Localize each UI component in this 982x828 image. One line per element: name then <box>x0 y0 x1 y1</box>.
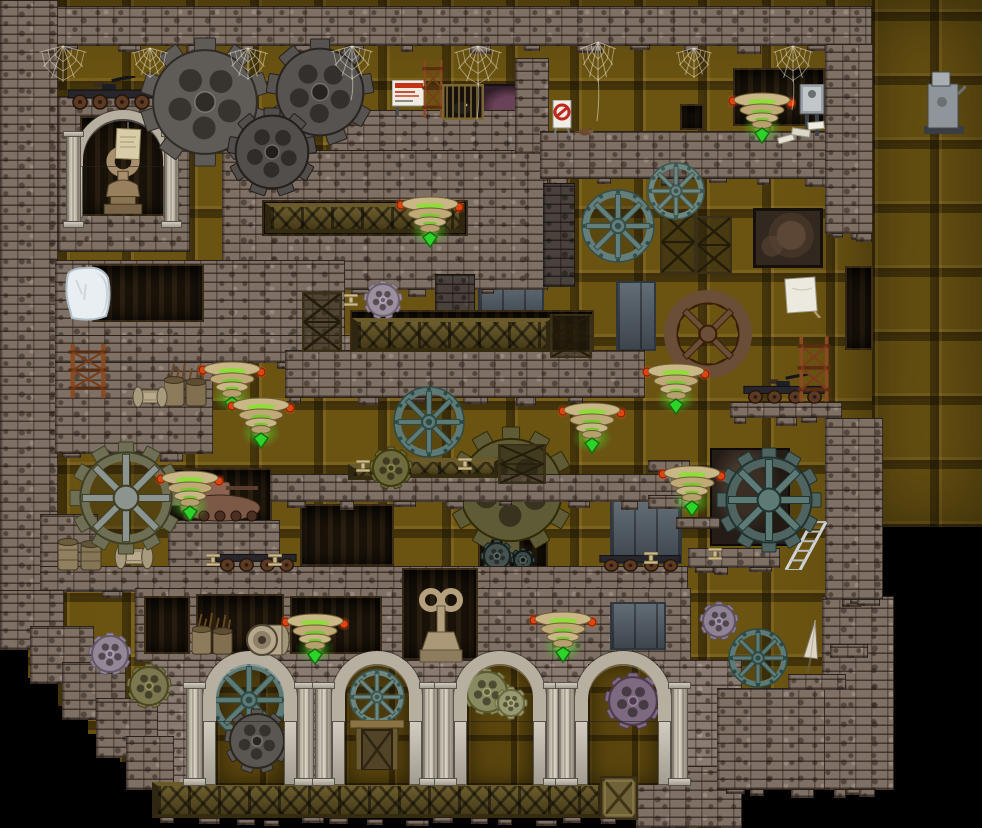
collectible-lamp[interactable] <box>642 359 710 417</box>
brick-crumb <box>776 417 797 426</box>
spider-web-icon <box>674 46 714 86</box>
spider-web-icon <box>130 46 170 86</box>
level-boundary <box>24 678 58 788</box>
stone-jamb <box>575 721 588 785</box>
column-base <box>161 221 182 228</box>
column-capital <box>183 682 206 689</box>
brick-crumb <box>237 819 255 825</box>
dark-alcove <box>680 104 704 130</box>
brick-wall <box>825 418 883 600</box>
brick-crumb <box>859 789 875 797</box>
collectible-lamp[interactable] <box>227 393 295 451</box>
column-capital <box>63 131 84 137</box>
wooden-lattice-tower <box>302 292 342 352</box>
brick-crumb <box>621 501 638 510</box>
spider-web-icon <box>578 40 618 136</box>
stone-column <box>66 136 81 222</box>
spider-web-icon <box>329 44 375 114</box>
brick-crumb <box>805 178 827 187</box>
brick-crumb <box>737 45 761 54</box>
column-base <box>183 778 206 786</box>
brick-wall <box>825 44 873 234</box>
brick-crumb <box>287 501 306 508</box>
brick-crumb <box>499 501 512 506</box>
collectible-lamp[interactable] <box>281 609 349 667</box>
stone-jamb <box>454 721 467 785</box>
brick-crumb <box>601 818 616 824</box>
dark-alcove <box>845 266 873 350</box>
brick-crumb <box>446 501 464 509</box>
machine <box>922 70 966 136</box>
gear-large-teal-cogwheel <box>711 442 827 558</box>
brick-crumb <box>524 45 540 51</box>
gear-olive-cog <box>121 658 177 714</box>
brick-crumb <box>568 501 590 508</box>
spider-web-icon <box>37 44 89 90</box>
brick-crumb <box>367 819 383 825</box>
brick-crumb <box>340 501 354 510</box>
stone-column <box>437 688 454 780</box>
wooden-door[interactable] <box>350 720 404 770</box>
cable-spool <box>132 386 168 408</box>
brick-crumb <box>749 567 772 572</box>
stone-jamb <box>203 721 216 785</box>
stone-column <box>671 688 688 780</box>
brick-wall <box>543 183 575 287</box>
stone-column <box>558 688 575 780</box>
stone-column <box>315 688 332 780</box>
brick-crumb <box>831 233 843 238</box>
brick-crumb <box>750 789 764 796</box>
stone-column <box>297 688 314 780</box>
anchor-bracket <box>268 554 282 566</box>
brick-crumb <box>329 818 348 824</box>
column-base <box>555 778 578 786</box>
collectible-lamp[interactable] <box>558 398 626 456</box>
brick-crumb <box>856 233 872 242</box>
collectible-lamp[interactable] <box>529 607 597 665</box>
wooden-crate <box>600 776 638 820</box>
spider-web-icon <box>226 46 270 88</box>
canvas-sheet <box>784 276 822 318</box>
column-base <box>63 221 84 228</box>
spider-web-icon <box>452 44 504 134</box>
stone-column <box>186 688 203 780</box>
stone-jamb <box>284 721 297 785</box>
brick-wall <box>717 688 825 790</box>
brick-crumb <box>857 599 880 606</box>
game-level-canvas <box>0 0 982 828</box>
anchor-bracket <box>344 294 358 306</box>
brick-crumb <box>734 417 746 424</box>
brick-crumb <box>709 178 727 183</box>
stone-jamb <box>658 721 671 785</box>
brick-crumb <box>199 818 220 824</box>
wooden-truss-girder <box>152 782 604 818</box>
brick-wall <box>270 474 688 502</box>
column-capital <box>434 682 457 689</box>
windup-key-statue <box>414 588 468 664</box>
collectible-lamp[interactable] <box>396 192 464 250</box>
wooden-lattice-tower <box>550 314 592 358</box>
gear-gray-cog <box>222 102 322 202</box>
mine-cart <box>598 544 682 572</box>
brick-wall <box>0 6 872 46</box>
spider-web-icon <box>771 44 815 124</box>
column-base <box>312 778 335 786</box>
rusty-trestle <box>794 334 834 404</box>
collectible-lamp[interactable] <box>658 461 726 519</box>
gear-pink-cog <box>358 275 408 325</box>
column-capital <box>312 682 335 689</box>
brick-crumb <box>408 289 426 297</box>
stone-jamb <box>332 721 345 785</box>
brick-crumb <box>393 501 416 507</box>
brick-wall <box>822 596 894 790</box>
dark-alcove <box>144 596 190 654</box>
brick-crumb <box>302 817 324 823</box>
brick-crumb <box>433 817 453 823</box>
brick-crumb <box>757 178 770 185</box>
brick-crumb <box>481 289 494 294</box>
mine-cart <box>214 542 298 572</box>
stone-jamb <box>409 721 422 785</box>
brick-crumb <box>498 819 512 825</box>
brick-crumb <box>358 397 379 405</box>
column-capital <box>668 682 691 689</box>
brick-crumb <box>695 567 714 573</box>
wooden-lattice-tower <box>498 444 546 484</box>
slate-panel <box>616 281 656 351</box>
brick-crumb <box>160 817 174 823</box>
no-entry-sign <box>551 100 573 136</box>
brick-crumb <box>536 820 557 826</box>
collectible-lamp[interactable] <box>156 466 224 524</box>
brick-crumb <box>714 567 728 575</box>
brick-crumb <box>630 45 650 50</box>
brick-crumb <box>791 789 814 798</box>
anchor-bracket <box>206 554 220 566</box>
brick-crumb <box>563 817 581 823</box>
dark-alcove <box>300 504 394 566</box>
column-capital <box>555 682 578 689</box>
brick-crumb <box>801 417 817 423</box>
column-base <box>434 778 457 786</box>
brick-wall <box>730 402 842 418</box>
rusty-trestle <box>64 342 112 400</box>
gear-olive-cog <box>364 441 418 495</box>
brick-crumb <box>834 789 846 798</box>
brick-crumb <box>516 397 536 406</box>
brick-wall <box>788 674 846 690</box>
stone-jamb <box>533 721 546 785</box>
brick-crumb <box>471 818 488 824</box>
column-base <box>668 778 691 786</box>
umbrella <box>799 618 825 676</box>
brick-crumb <box>102 591 123 598</box>
gear-teal-wheel <box>642 157 710 225</box>
anchor-bracket <box>644 552 658 564</box>
brick-crumb <box>264 820 279 826</box>
slate-panel <box>610 602 666 650</box>
gear-teal-wheel <box>723 623 793 693</box>
barrels-with-plants <box>192 612 234 656</box>
wall-mural <box>753 208 823 268</box>
brick-wall <box>830 644 868 658</box>
brick-crumb <box>406 820 429 826</box>
ice-block <box>62 264 114 322</box>
brick-crumb <box>726 789 745 794</box>
brick-crumb <box>401 45 413 52</box>
